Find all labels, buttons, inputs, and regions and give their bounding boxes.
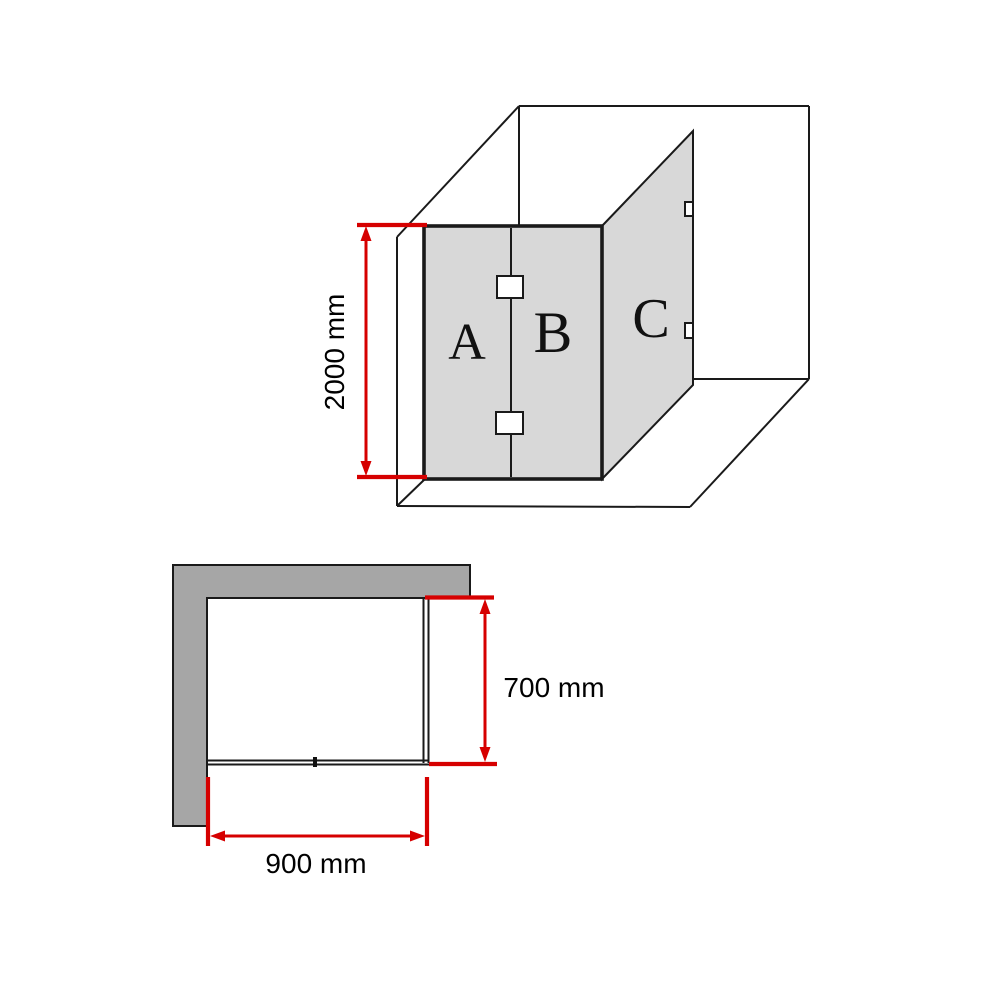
floor-left-corner-edge xyxy=(397,479,425,506)
width-dimension-label: 900 mm xyxy=(265,848,366,879)
depth-dimension: 700 mm xyxy=(425,598,605,765)
left-wall-top-edge xyxy=(397,106,519,237)
width-dimension: 900 mm xyxy=(208,777,427,879)
door-split-tick xyxy=(313,757,317,767)
width-dim-arrowhead-right-icon xyxy=(410,831,425,842)
diagram-svg: A B C 2000 mm xyxy=(0,0,1000,1000)
plan-view: 700 mm 900 mm xyxy=(173,565,605,879)
wall-bracket-top-icon xyxy=(685,202,693,216)
hinge-top-icon xyxy=(497,276,523,298)
floor-right-edge xyxy=(690,379,809,507)
depth-dimension-label: 700 mm xyxy=(503,672,604,703)
height-dimension: 2000 mm xyxy=(319,225,427,477)
elevation-view: A B C 2000 mm xyxy=(319,106,809,507)
hinge-bottom-icon xyxy=(496,412,523,434)
width-dim-arrowhead-left-icon xyxy=(210,831,225,842)
height-dim-arrowhead-down-icon xyxy=(361,461,372,476)
height-dim-arrowhead-up-icon xyxy=(361,226,372,241)
panel-c-label: C xyxy=(632,288,669,350)
panel-b-label: B xyxy=(534,300,573,365)
height-dimension-label: 2000 mm xyxy=(319,294,350,411)
depth-dim-arrowhead-down-icon xyxy=(480,747,491,762)
panel-a-label: A xyxy=(448,314,486,371)
shower-screen-diagram: A B C 2000 mm xyxy=(0,0,1000,1000)
depth-dim-arrowhead-up-icon xyxy=(480,599,491,614)
wall-bracket-bottom-icon xyxy=(685,323,693,338)
plan-side-panel xyxy=(424,598,429,763)
floor-front-edge xyxy=(397,506,690,507)
plan-front-screen xyxy=(207,757,429,767)
